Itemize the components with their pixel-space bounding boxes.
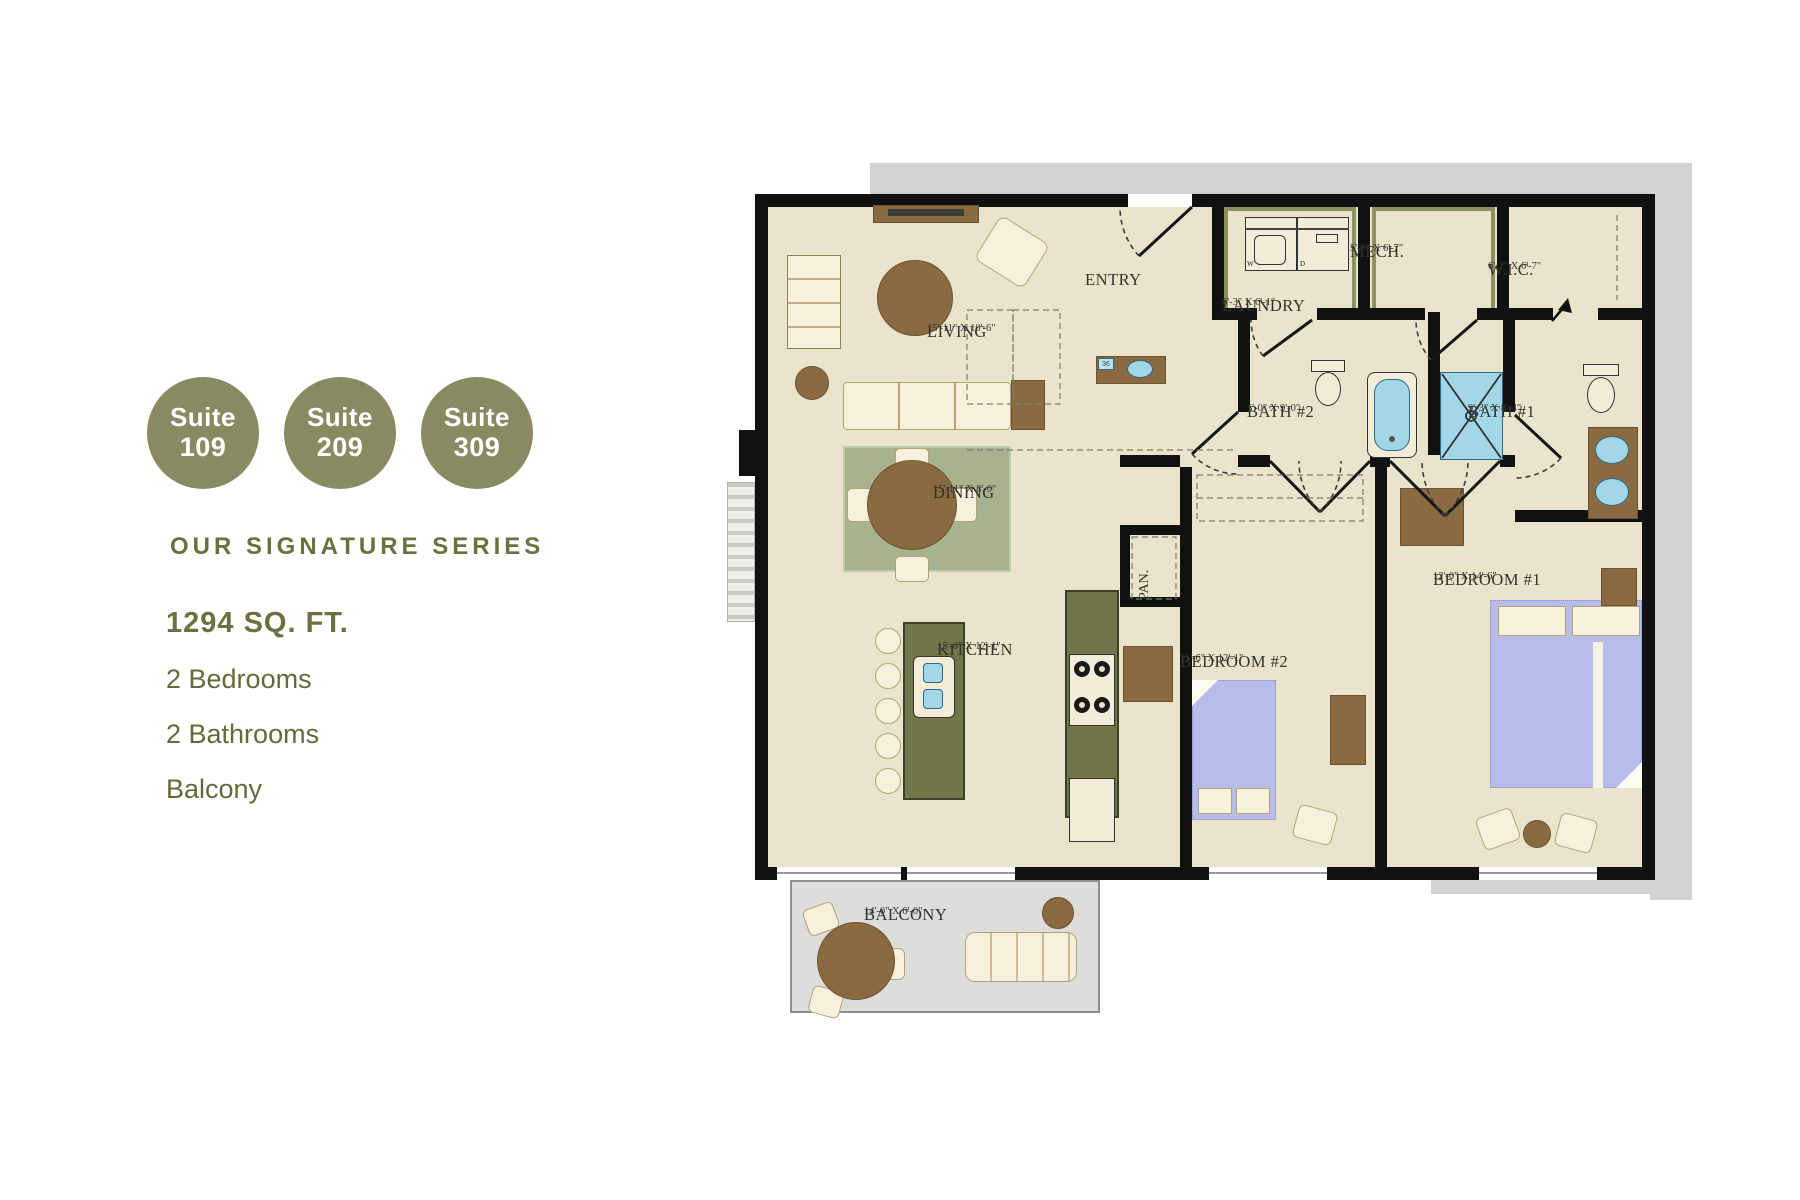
square-footage: 1294 SQ. FT. xyxy=(166,607,349,640)
wall-hall-top-3 xyxy=(1477,308,1553,320)
fixture-tag: 36 xyxy=(1098,358,1114,370)
wall-left-bump xyxy=(739,430,756,476)
wall-bath2-left xyxy=(1238,312,1250,412)
pillow xyxy=(1236,788,1270,814)
wall-bath1-left xyxy=(1503,312,1515,412)
tub-drain xyxy=(1389,436,1395,442)
ottoman xyxy=(877,260,953,336)
blanket-fold xyxy=(1616,762,1642,788)
toilet-tank-icon xyxy=(1583,364,1619,376)
suite-badges: Suite 109 Suite 209 Suite 309 xyxy=(147,377,533,489)
sofa xyxy=(843,382,1011,430)
bar-stool xyxy=(875,628,901,654)
dryer-vent xyxy=(1316,234,1338,243)
suite-word: Suite xyxy=(170,403,236,432)
burner-icon xyxy=(1074,661,1090,677)
sofa-end-table xyxy=(1011,380,1045,430)
nightstand xyxy=(1601,568,1637,606)
suite-word: Suite xyxy=(444,403,510,432)
wall-hall-top-4 xyxy=(1598,308,1642,320)
window-bedroom2 xyxy=(1207,867,1329,880)
toilet-tank-icon xyxy=(1311,360,1345,372)
washer-door xyxy=(1254,235,1286,265)
sink-icon xyxy=(1127,360,1153,378)
wall-laundry-right xyxy=(1358,207,1370,310)
suite-number: 209 xyxy=(317,432,364,462)
wall-pantry-left xyxy=(1120,525,1130,607)
lining-laundry-left xyxy=(1224,207,1228,308)
dining-table xyxy=(867,460,957,550)
burner-icon xyxy=(1074,697,1090,713)
tv-icon xyxy=(888,209,964,216)
exterior-stairs xyxy=(727,482,755,622)
suite-badge-209[interactable]: Suite 209 xyxy=(284,377,396,489)
pillow xyxy=(1198,788,1232,814)
lining-mech-right xyxy=(1491,207,1495,308)
suite-badge-309[interactable]: Suite 309 xyxy=(421,377,533,489)
side-table xyxy=(795,366,829,400)
wall-hall-bottom-1 xyxy=(1120,455,1180,467)
blanket-stripe xyxy=(1593,642,1603,788)
wall-bedroom-divider xyxy=(1375,467,1387,867)
toilet-icon xyxy=(1587,377,1615,413)
patio-table xyxy=(817,922,895,1000)
sink-bowl-icon xyxy=(923,689,943,709)
pillow xyxy=(1572,606,1640,636)
wall-shower-left xyxy=(1428,312,1440,455)
bar-stool xyxy=(875,768,901,794)
lining-mech xyxy=(1372,207,1495,211)
wall-hall-top-1 xyxy=(1212,308,1257,320)
suite-badge-109[interactable]: Suite 109 xyxy=(147,377,259,489)
blanket-fold xyxy=(1192,680,1218,706)
bookcase xyxy=(787,255,841,349)
washer-tag: W xyxy=(1247,260,1254,268)
wall-hall-bottom-2 xyxy=(1238,455,1270,467)
exterior-ground-bottom xyxy=(1431,880,1692,894)
exterior-ground-right xyxy=(1650,163,1692,900)
toilet-icon xyxy=(1315,372,1341,406)
sink-icon xyxy=(1595,478,1629,506)
oven xyxy=(1069,778,1115,842)
burner-icon xyxy=(1094,697,1110,713)
entry-door-opening xyxy=(1128,194,1192,207)
wall-hall-top-2 xyxy=(1317,308,1425,320)
wardrobe xyxy=(1400,488,1464,546)
feature-balcony: Balcony xyxy=(166,774,262,805)
room-label-pantry: PAN. xyxy=(1137,542,1153,600)
suite-number: 309 xyxy=(454,432,501,462)
kitchen-cabinet xyxy=(1123,646,1173,702)
planter xyxy=(1042,897,1074,929)
appliance-panel-line xyxy=(1245,228,1349,230)
dryer-tag: D xyxy=(1300,260,1305,268)
dining-chair xyxy=(895,556,929,582)
pillow xyxy=(1498,606,1566,636)
wall-wic-left xyxy=(1497,207,1509,310)
bar-stool xyxy=(875,698,901,724)
dresser xyxy=(1330,695,1366,765)
burner-icon xyxy=(1094,661,1110,677)
feature-bathrooms: 2 Bathrooms xyxy=(166,719,319,750)
accent-table xyxy=(1523,820,1551,848)
suite-word: Suite xyxy=(307,403,373,432)
bar-stool xyxy=(875,663,901,689)
window-living xyxy=(775,867,903,880)
sink-bowl-icon xyxy=(923,663,943,683)
series-title: OUR SIGNATURE SERIES xyxy=(170,533,544,561)
lining-mech-left xyxy=(1372,207,1376,308)
floor-plan: W D 36 xyxy=(755,160,1700,1105)
feature-bedrooms: 2 Bedrooms xyxy=(166,664,312,695)
bar-stool xyxy=(875,733,901,759)
shower-icon xyxy=(1440,372,1503,460)
lining-laundry-right xyxy=(1352,207,1356,308)
lining-laundry xyxy=(1224,207,1356,211)
balcony-sliding-door xyxy=(905,867,1017,880)
suite-number: 109 xyxy=(180,432,227,462)
window-bedroom1 xyxy=(1477,867,1599,880)
sink-icon xyxy=(1595,436,1629,464)
chaise-lounge xyxy=(965,932,1077,982)
wall-laundry-left xyxy=(1212,207,1224,310)
